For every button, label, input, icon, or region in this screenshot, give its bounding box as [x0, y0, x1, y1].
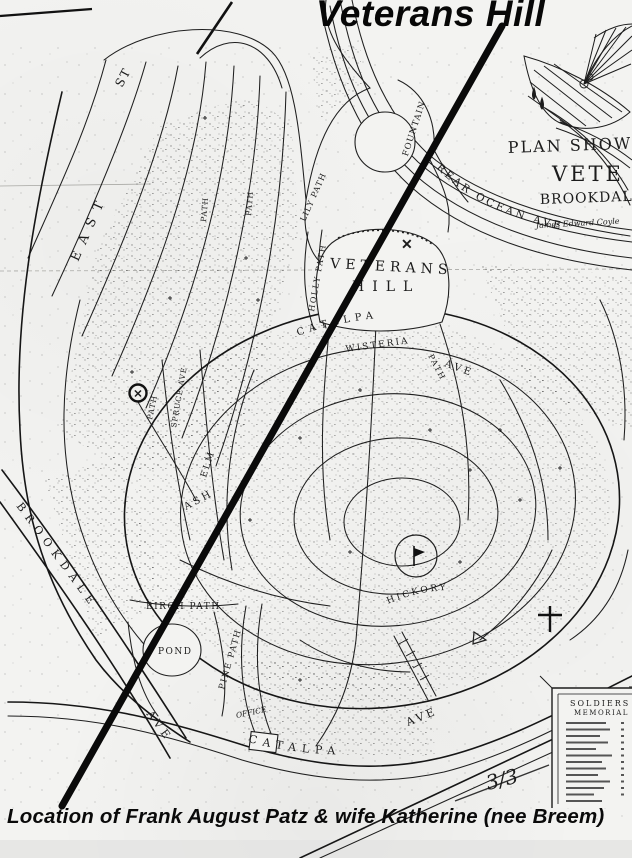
- page-title: Veterans Hill: [316, 0, 632, 35]
- legend-heading-line2: MEMORIAL: [574, 709, 629, 717]
- legend-heading-line1: SOLDIERS: [570, 699, 630, 708]
- hill-x-marker: ✕: [401, 237, 413, 253]
- scanned-map-page: VETERANS HILL ✕ FOUNTAIN POND ✕ OFFICE E…: [0, 0, 632, 858]
- cemetery-map: VETERANS HILL ✕ FOUNTAIN POND ✕ OFFICE E…: [0, 0, 632, 858]
- birch-path-label: BIRCH PATH: [146, 602, 221, 612]
- circled-x-glyph: ✕: [133, 388, 142, 401]
- legend-box: SOLDIERS MEMORIAL: [540, 676, 632, 808]
- plan-header-line3: BROOKDALE: [540, 188, 632, 208]
- pond-label: POND: [158, 647, 193, 657]
- veterans-hill-label-line2: HILL: [352, 279, 420, 295]
- plan-header-line2: VETE: [551, 162, 624, 186]
- caption: Location of Frank August Patz & wife Kat…: [7, 805, 627, 829]
